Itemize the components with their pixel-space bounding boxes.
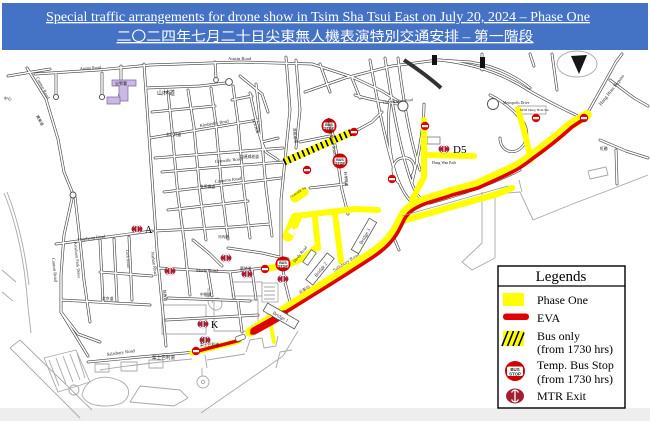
svg-text:(from 1730 hrs): (from 1730 hrs) (537, 342, 613, 356)
svg-text:山林道: 山林道 (157, 89, 175, 97)
svg-text:梨士巴利道: 梨士巴利道 (152, 354, 175, 361)
svg-text:STOP: STOP (335, 162, 345, 166)
svg-text:加連威老道: 加連威老道 (240, 154, 259, 159)
svg-text:尖警署: 尖警署 (115, 80, 127, 86)
svg-text:STOP: STOP (278, 265, 288, 269)
svg-text:Hung Wan Path: Hung Wan Path (432, 161, 456, 165)
svg-text:K: K (211, 320, 219, 331)
svg-text:中心: 中心 (4, 96, 12, 101)
svg-text:MTR Exit: MTR Exit (537, 389, 587, 403)
svg-text:EVA: EVA (537, 311, 560, 325)
svg-text:Special traffic arrangements f: Special traffic arrangements for drone s… (46, 9, 590, 24)
svg-text:Mody Road: Mody Road (196, 268, 219, 273)
svg-text:二〇二四年七月二十日尖東無人機表演特別交通安排 – 第一階段: 二〇二四年七月二十日尖東無人機表演特別交通安排 – 第一階段 (117, 28, 534, 44)
svg-text:Phase One: Phase One (537, 293, 588, 307)
svg-text:紅磡: 紅磡 (600, 146, 608, 151)
svg-text:Austin Road: Austin Road (228, 56, 252, 61)
svg-text:金巴利道: 金巴利道 (166, 132, 181, 137)
svg-text:D5: D5 (453, 144, 467, 156)
svg-text:梨士巴利道: 梨士巴利道 (200, 342, 219, 347)
svg-text:Legends: Legends (536, 269, 587, 285)
svg-text:A: A (145, 225, 153, 236)
svg-text:(from 1730 hrs): (from 1730 hrs) (537, 372, 613, 386)
svg-text:麼地道: 麼地道 (240, 266, 252, 271)
svg-text:Bus only: Bus only (537, 329, 580, 343)
svg-text:MTR Hung Hom Stn: MTR Hung Hom Stn (520, 108, 549, 112)
svg-text:中間道: 中間道 (200, 292, 212, 297)
svg-text:河內道: 河內道 (218, 234, 229, 239)
svg-text:北京道: 北京道 (102, 296, 114, 301)
svg-text:Metropolis Drive: Metropolis Drive (503, 101, 530, 105)
svg-text:金馬倎道: 金馬倎道 (200, 184, 215, 189)
svg-text:Temp. Bus Stop: Temp. Bus Stop (537, 358, 614, 372)
svg-text:STOP: STOP (509, 371, 521, 376)
